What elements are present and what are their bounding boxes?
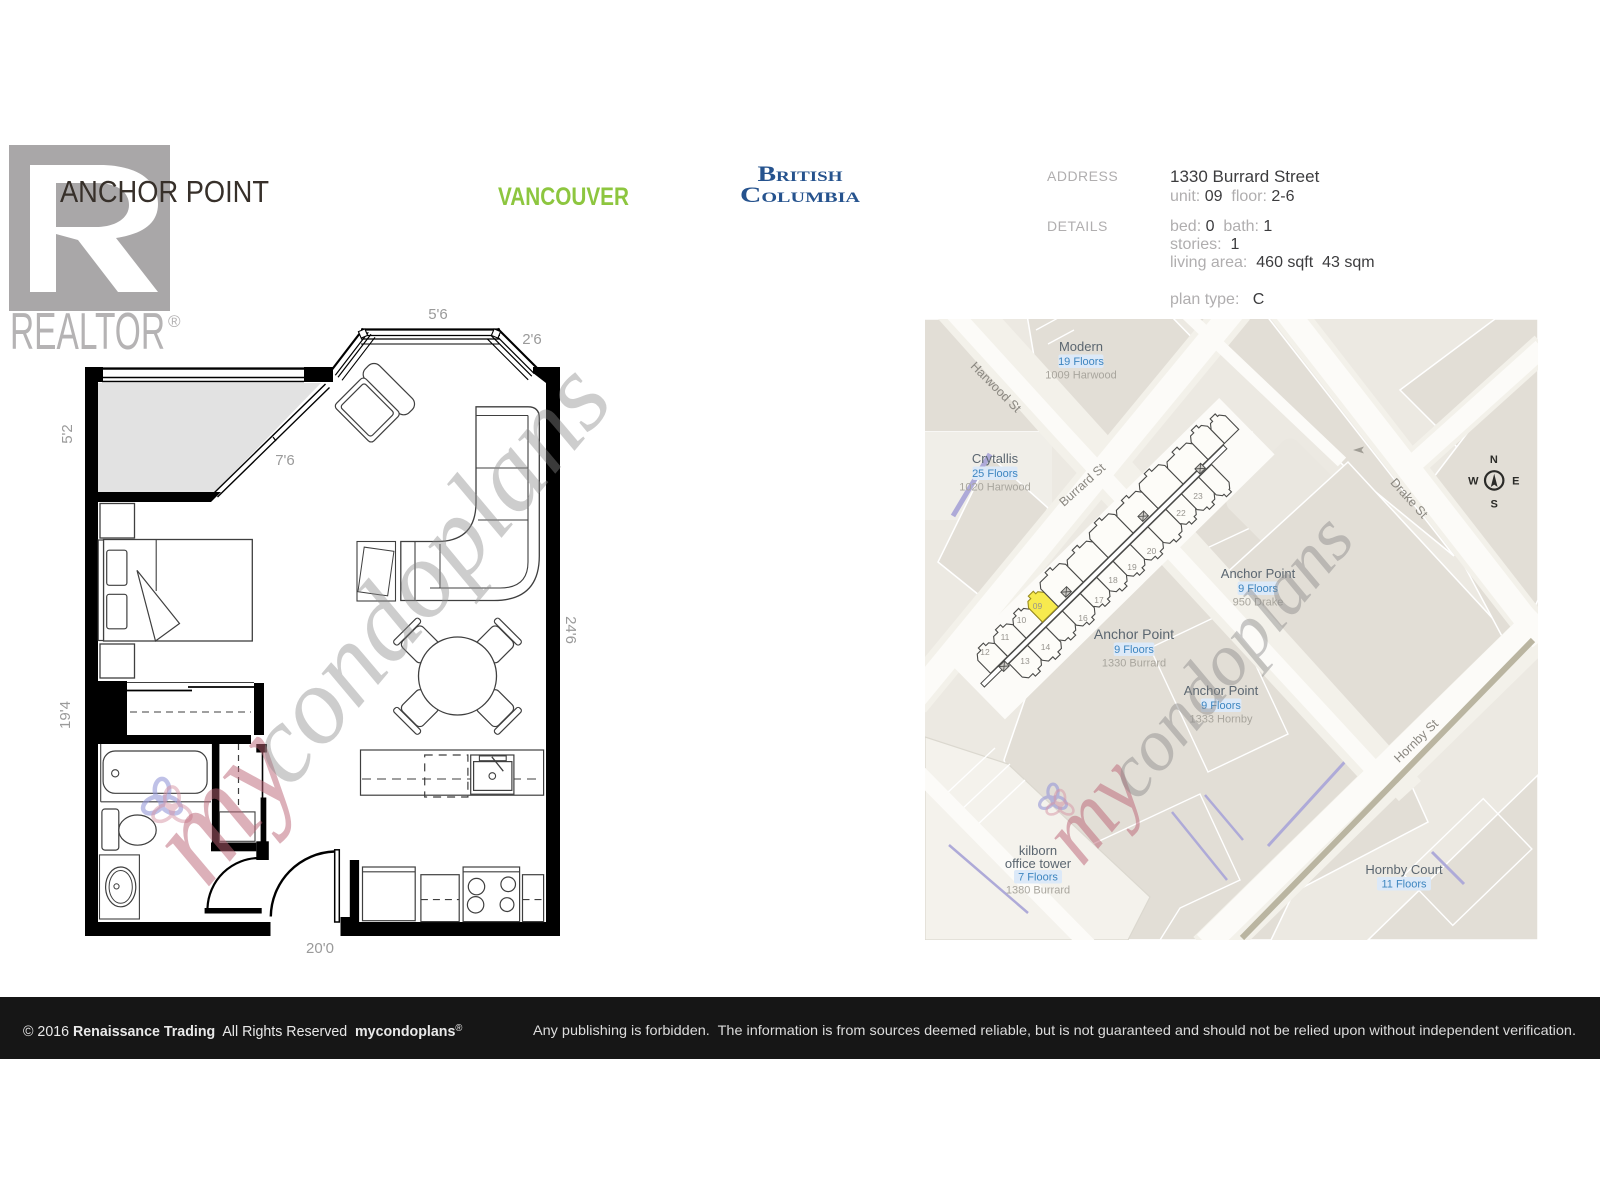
svg-text:11 Floors: 11 Floors [1381, 879, 1427, 891]
svg-text:1020 Harwood: 1020 Harwood [959, 482, 1031, 494]
svg-text:23: 23 [1193, 491, 1203, 501]
svg-text:17: 17 [1094, 595, 1104, 605]
svg-text:7'6: 7'6 [275, 452, 295, 469]
svg-text:13: 13 [1020, 656, 1030, 666]
svg-text:14: 14 [1041, 642, 1051, 652]
svg-text:7 Floors: 7 Floors [1018, 872, 1058, 884]
svg-text:1330 Burrard: 1330 Burrard [1102, 658, 1166, 670]
svg-text:10: 10 [1017, 615, 1027, 625]
svg-text:5'2: 5'2 [59, 424, 76, 444]
svg-text:9 Floors: 9 Floors [1114, 644, 1154, 656]
svg-text:Modern: Modern [1059, 339, 1103, 354]
svg-text:Crytallis: Crytallis [972, 451, 1019, 466]
svg-text:11: 11 [1001, 632, 1010, 642]
svg-text:5'6: 5'6 [428, 306, 448, 323]
svg-text:unit: 09 floor: 2-6: unit: 09 floor: 2-6 [1170, 188, 1295, 205]
svg-text:N: N [1490, 454, 1498, 466]
svg-text:19'4: 19'4 [57, 701, 74, 729]
svg-text:Any publishing is forbidden.: Any publishing is forbidden. The informa… [533, 1022, 1576, 1038]
svg-text:W: W [1468, 476, 1479, 488]
svg-text:ADDRESS: ADDRESS [1047, 168, 1118, 184]
svg-text:1380 Burrard: 1380 Burrard [1006, 885, 1070, 897]
svg-text:19 Floors: 19 Floors [1058, 356, 1104, 368]
svg-text:VANCOUVER: VANCOUVER [498, 183, 629, 211]
svg-text:®: ® [168, 312, 181, 331]
svg-text:16: 16 [1078, 613, 1088, 623]
svg-text:Hornby Court: Hornby Court [1365, 862, 1443, 877]
svg-text:18: 18 [1108, 575, 1118, 585]
svg-text:ANCHOR POINT: ANCHOR POINT [60, 174, 269, 209]
svg-text:1009 Harwood: 1009 Harwood [1045, 370, 1117, 382]
svg-text:REALTOR: REALTOR [10, 303, 165, 361]
svg-text:20: 20 [1147, 546, 1157, 556]
svg-text:1330 Burrard Street: 1330 Burrard Street [1170, 167, 1320, 186]
svg-text:Columbia: Columbia [740, 182, 860, 207]
svg-text:living area: 460 sqft 43 sqm: living area: 460 sqft 43 sqm [1170, 254, 1375, 271]
svg-text:25 Floors: 25 Floors [972, 468, 1018, 480]
svg-text:12: 12 [980, 647, 990, 657]
svg-text:S: S [1491, 498, 1498, 510]
svg-text:stories: 1: stories: 1 [1170, 236, 1239, 253]
svg-text:19: 19 [1127, 562, 1137, 572]
svg-text:DETAILS: DETAILS [1047, 218, 1108, 234]
svg-text:© 2016 Renaissance Trading Al: © 2016 Renaissance Trading All Rights Re… [23, 1023, 463, 1040]
svg-text:24'6: 24'6 [562, 616, 579, 644]
svg-text:22: 22 [1176, 508, 1186, 518]
svg-text:Anchor Point: Anchor Point [1094, 626, 1174, 642]
svg-text:office tower: office tower [1005, 856, 1072, 871]
svg-text:20'0: 20'0 [306, 940, 334, 957]
svg-text:09: 09 [1033, 601, 1043, 611]
svg-text:plan type: C: plan type: C [1170, 291, 1264, 308]
svg-text:E: E [1512, 476, 1519, 488]
svg-text:bed: 0 bath: 1: bed: 0 bath: 1 [1170, 218, 1272, 235]
